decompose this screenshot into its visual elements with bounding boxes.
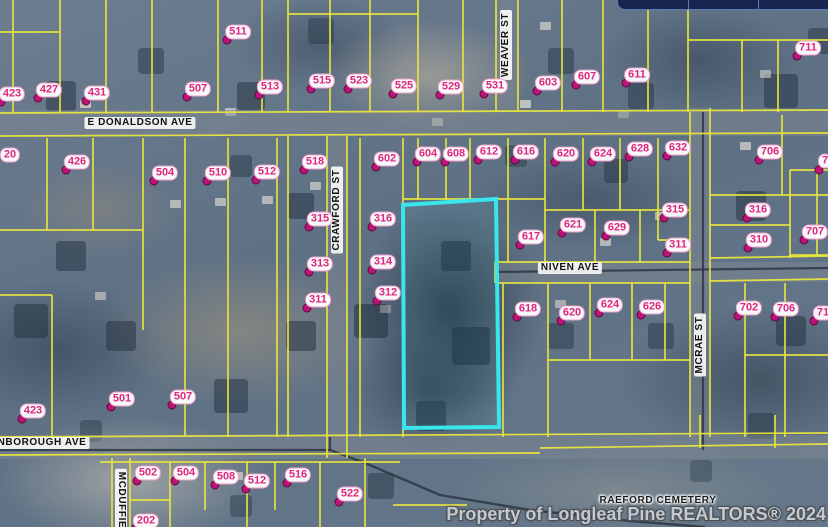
parcel-label-523[interactable]: 523: [346, 74, 372, 89]
parcel-label-513[interactable]: 513: [257, 80, 283, 95]
street-label-crawford-st: CRAWFORD ST: [331, 166, 343, 253]
parcel-label-311[interactable]: 311: [305, 293, 331, 308]
parcel-label-310[interactable]: 310: [746, 233, 772, 248]
parcel-label-504[interactable]: 504: [173, 466, 199, 481]
parcel-label-525[interactable]: 525: [391, 79, 417, 94]
map-canvas[interactable]: 4234274315075115135155235255295316036076…: [0, 0, 828, 527]
watermark: Property of Longleaf Pine REALTORS® 2024: [446, 504, 826, 525]
parcel-label-706[interactable]: 706: [773, 302, 799, 317]
parcel-label-508[interactable]: 508: [213, 470, 239, 485]
street-label-e-donaldson-ave: E DONALDSON AVE: [84, 117, 195, 129]
parcel-label-629[interactable]: 629: [604, 221, 630, 236]
street-label-weaver-st: WEAVER ST: [500, 10, 512, 80]
parcel-label-510[interactable]: 510: [205, 166, 231, 181]
parcel-label-7[interactable]: 7: [818, 154, 828, 169]
parcel-label-616[interactable]: 616: [513, 145, 539, 160]
parcel-label-628[interactable]: 628: [627, 142, 653, 157]
parcel-label-711[interactable]: 711: [795, 41, 821, 56]
street-label-niven-ave: NIVEN AVE: [538, 262, 602, 274]
parcel-label-618[interactable]: 618: [515, 302, 541, 317]
parcel-label-612[interactable]: 612: [476, 145, 502, 160]
parcel-label-502[interactable]: 502: [135, 466, 161, 481]
parcel-label-504[interactable]: 504: [152, 166, 178, 181]
parcel-label-515[interactable]: 515: [309, 74, 335, 89]
parcel-label-20[interactable]: 20: [0, 148, 20, 163]
top-overlay-bar-segment: [618, 0, 689, 9]
parcel-label-431[interactable]: 431: [84, 86, 110, 101]
parcel-label-702[interactable]: 702: [736, 301, 762, 316]
parcel-label-427[interactable]: 427: [36, 83, 62, 98]
parcel-label-706[interactable]: 706: [757, 145, 783, 160]
parcel-label-512[interactable]: 512: [244, 474, 270, 489]
parcel-label-426[interactable]: 426: [64, 155, 90, 170]
parcel-label-624[interactable]: 624: [597, 298, 623, 313]
parcel-label-511[interactable]: 511: [225, 25, 251, 40]
parcel-label-531[interactable]: 531: [482, 79, 508, 94]
parcel-label-71[interactable]: 71: [813, 306, 828, 321]
parcel-label-315[interactable]: 315: [307, 212, 333, 227]
top-overlay-bar-segment: [759, 0, 828, 9]
parcel-label-315[interactable]: 315: [662, 203, 688, 218]
parcel-label-620[interactable]: 620: [553, 147, 579, 162]
parcel-label-617[interactable]: 617: [518, 230, 544, 245]
parcel-label-512[interactable]: 512: [254, 165, 280, 180]
parcel-label-608[interactable]: 608: [443, 147, 469, 162]
parcel-label-624[interactable]: 624: [590, 147, 616, 162]
parcel-label-626[interactable]: 626: [639, 300, 665, 315]
parcel-label-423[interactable]: 423: [0, 87, 25, 102]
parcel-label-311[interactable]: 311: [665, 238, 691, 253]
parcel-label-620[interactable]: 620: [559, 306, 585, 321]
street-label-mcrae-st: MCRAE ST: [694, 313, 706, 376]
parcel-label-603[interactable]: 603: [535, 76, 561, 91]
top-overlay-bar: [617, 0, 828, 10]
parcel-label-313[interactable]: 313: [307, 257, 333, 272]
parcel-label-611[interactable]: 611: [624, 68, 650, 83]
street-label-mcduffie: MCDUFFIE: [115, 469, 127, 527]
parcel-label-423[interactable]: 423: [20, 404, 46, 419]
parcel-label-501[interactable]: 501: [109, 392, 135, 407]
parcel-label-516[interactable]: 516: [285, 468, 311, 483]
top-overlay-bar-segment: [689, 0, 760, 9]
parcel-label-507[interactable]: 507: [170, 390, 196, 405]
parcel-label-632[interactable]: 632: [665, 141, 691, 156]
parcel-label-314[interactable]: 314: [370, 255, 396, 270]
parcel-label-316[interactable]: 316: [370, 212, 396, 227]
parcel-label-602[interactable]: 602: [374, 152, 400, 167]
parcel-label-316[interactable]: 316: [745, 203, 771, 218]
parcel-label-507[interactable]: 507: [185, 82, 211, 97]
street-label-nborough-ave: NBOROUGH AVE: [0, 437, 89, 449]
parcel-label-312[interactable]: 312: [375, 286, 401, 301]
parcel-label-604[interactable]: 604: [415, 147, 441, 162]
parcel-label-522[interactable]: 522: [337, 487, 363, 502]
parcel-label-621[interactable]: 621: [560, 218, 586, 233]
highlighted-parcel[interactable]: [403, 199, 499, 428]
parcel-label-707[interactable]: 707: [802, 225, 828, 240]
parcel-label-202[interactable]: 202: [133, 514, 159, 527]
parcel-label-529[interactable]: 529: [438, 80, 464, 95]
parcel-label-607[interactable]: 607: [574, 70, 600, 85]
parcel-label-518[interactable]: 518: [302, 155, 328, 170]
